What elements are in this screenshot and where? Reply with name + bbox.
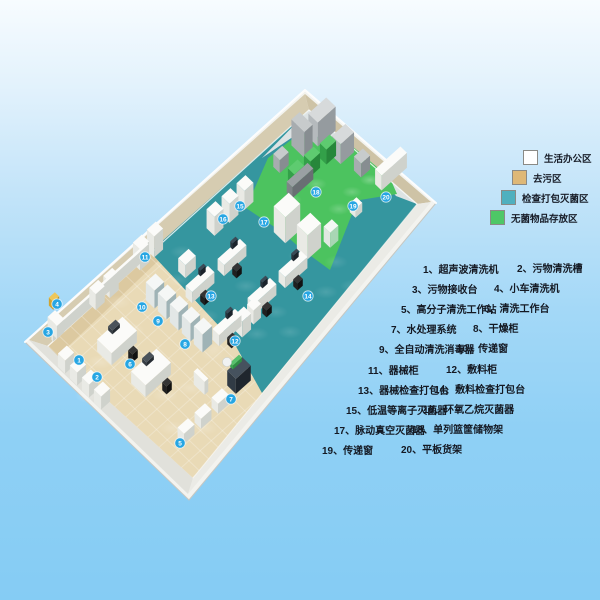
marker-number: 11 [142, 254, 149, 261]
marker-11: 11 [140, 252, 150, 262]
equipment-item-10: 10、传递窗 [457, 340, 508, 355]
marker-3: 3 [43, 327, 53, 337]
floor-light-spot [342, 187, 362, 198]
marker-number: 13 [207, 293, 215, 300]
marker-number: 10 [138, 304, 146, 311]
marker-number: 6 [128, 361, 132, 368]
equipment-item-16: 16、环氧乙烷灭菌器 [423, 401, 514, 416]
equipment-item-7: 7、水处理系统 [391, 325, 457, 336]
equipment-line: 15、低温等离子灭菌器 16、环氧乙烷灭菌器 [346, 401, 600, 413]
marker-18: 18 [311, 187, 321, 197]
equipment-line: 9、全自动清洗消毒器 10、传递窗 [379, 340, 600, 352]
floor-light-spot [278, 325, 302, 338]
marker-number: 20 [382, 194, 390, 201]
legend-item-inspection-pack: 检查打包灭菌区 [501, 189, 589, 207]
floor-light-spot [340, 279, 364, 292]
equipment-item-5: 5、高分子清洗工作站 [401, 305, 497, 316]
legend-item-office: 生活办公区 [523, 149, 592, 167]
marker-6: 6 [125, 359, 135, 369]
equipment-item-1: 1、超声波清洗机 [423, 265, 499, 276]
equipment-item-3: 3、污物接收台 [412, 285, 478, 296]
equipment-item-14: 14、敷料检查打包台 [434, 381, 525, 396]
marker-12: 12 [230, 336, 240, 346]
marker-16: 16 [218, 214, 228, 224]
equipment-line: 5、高分子清洗工作站 6、清洗工作台 [401, 300, 600, 312]
equipment-item-19: 19、传递窗 [322, 446, 373, 457]
equipment-line: 19、传递窗 20、平板货架 [322, 441, 592, 453]
marker-14: 14 [303, 291, 313, 301]
legend-swatch-decontamination [512, 170, 527, 185]
marker-number: 2 [95, 374, 99, 381]
marker-15: 15 [235, 201, 245, 211]
legend-swatch-office [523, 150, 538, 165]
legend-label: 无菌物品存放区 [511, 211, 578, 225]
equipment-line: 17、脉动真空灭菌器 18、单列篮筐储物架 [334, 421, 600, 433]
floor-light-spot [324, 255, 348, 268]
legend-item-sterile-storage: 无菌物品存放区 [490, 209, 578, 227]
marker-19: 19 [348, 201, 358, 211]
scene: 1234567891011121314151617181920 生活办公区 去污… [0, 0, 600, 600]
equipment-line: 7、水处理系统 8、干燥柜 [391, 320, 600, 332]
legend-label: 去污区 [533, 171, 562, 185]
equipment-item-12: 12、敷料柜 [446, 361, 497, 376]
equipment-line: 11、器械柜 12、敷料柜 [368, 361, 600, 373]
marker-number: 7 [229, 396, 233, 403]
equipment-item-20: 20、平板货架 [401, 441, 462, 456]
marker-20: 20 [381, 192, 391, 202]
legend-label: 检查打包灭菌区 [522, 191, 589, 205]
equipment-item-6: 6、清洗工作台 [484, 300, 550, 315]
marker-13: 13 [206, 291, 216, 301]
marker-7: 7 [226, 394, 236, 404]
marker-8: 8 [180, 339, 190, 349]
equipment-item-11: 11、器械柜 [368, 366, 419, 377]
marker-number: 3 [46, 329, 50, 336]
marker-number: 14 [304, 293, 312, 300]
equipment-item-8: 8、干燥柜 [473, 320, 519, 335]
legend-swatch-sterile-storage [490, 210, 505, 225]
marker-number: 17 [260, 219, 268, 226]
equipment-item-2: 2、污物清洗槽 [517, 260, 583, 275]
equipment-line: 1、超声波清洗机 2、污物清洗槽 [423, 260, 600, 272]
marker-number: 15 [236, 203, 244, 210]
marker-number: 12 [231, 338, 239, 345]
marker-10: 10 [137, 302, 147, 312]
marker-2: 2 [92, 372, 102, 382]
marker-number: 19 [349, 203, 357, 210]
legend-label: 生活办公区 [544, 151, 592, 165]
legend-item-decontamination: 去污区 [512, 169, 562, 187]
marker-9: 9 [153, 316, 163, 326]
equipment-item-4: 4、小车清洗机 [494, 280, 560, 295]
marker-17: 17 [259, 217, 269, 227]
floor-light-spot [328, 203, 350, 215]
water-tank-sphere [223, 358, 232, 367]
marker-number: 1 [77, 357, 81, 364]
marker-5: 5 [175, 438, 185, 448]
marker-number: 5 [178, 440, 182, 447]
equipment-line: 3、污物接收台 4、小车清洗机 [412, 280, 600, 292]
marker-number: 8 [183, 341, 187, 348]
floor-light-spot [314, 285, 338, 298]
marker-1: 1 [74, 355, 84, 365]
equipment-line: 13、器械检查打包台 14、敷料检查打包台 [358, 381, 600, 393]
floor-light-spot [234, 279, 258, 292]
marker-number: 16 [219, 216, 227, 223]
marker-number: 9 [156, 318, 160, 325]
legend-swatch-inspection-pack [501, 190, 516, 205]
marker-number: 4 [55, 301, 59, 308]
marker-number: 18 [312, 189, 320, 196]
marker-4: 4 [52, 299, 62, 309]
equipment-item-18: 18、单列篮筐储物架 [412, 421, 503, 436]
